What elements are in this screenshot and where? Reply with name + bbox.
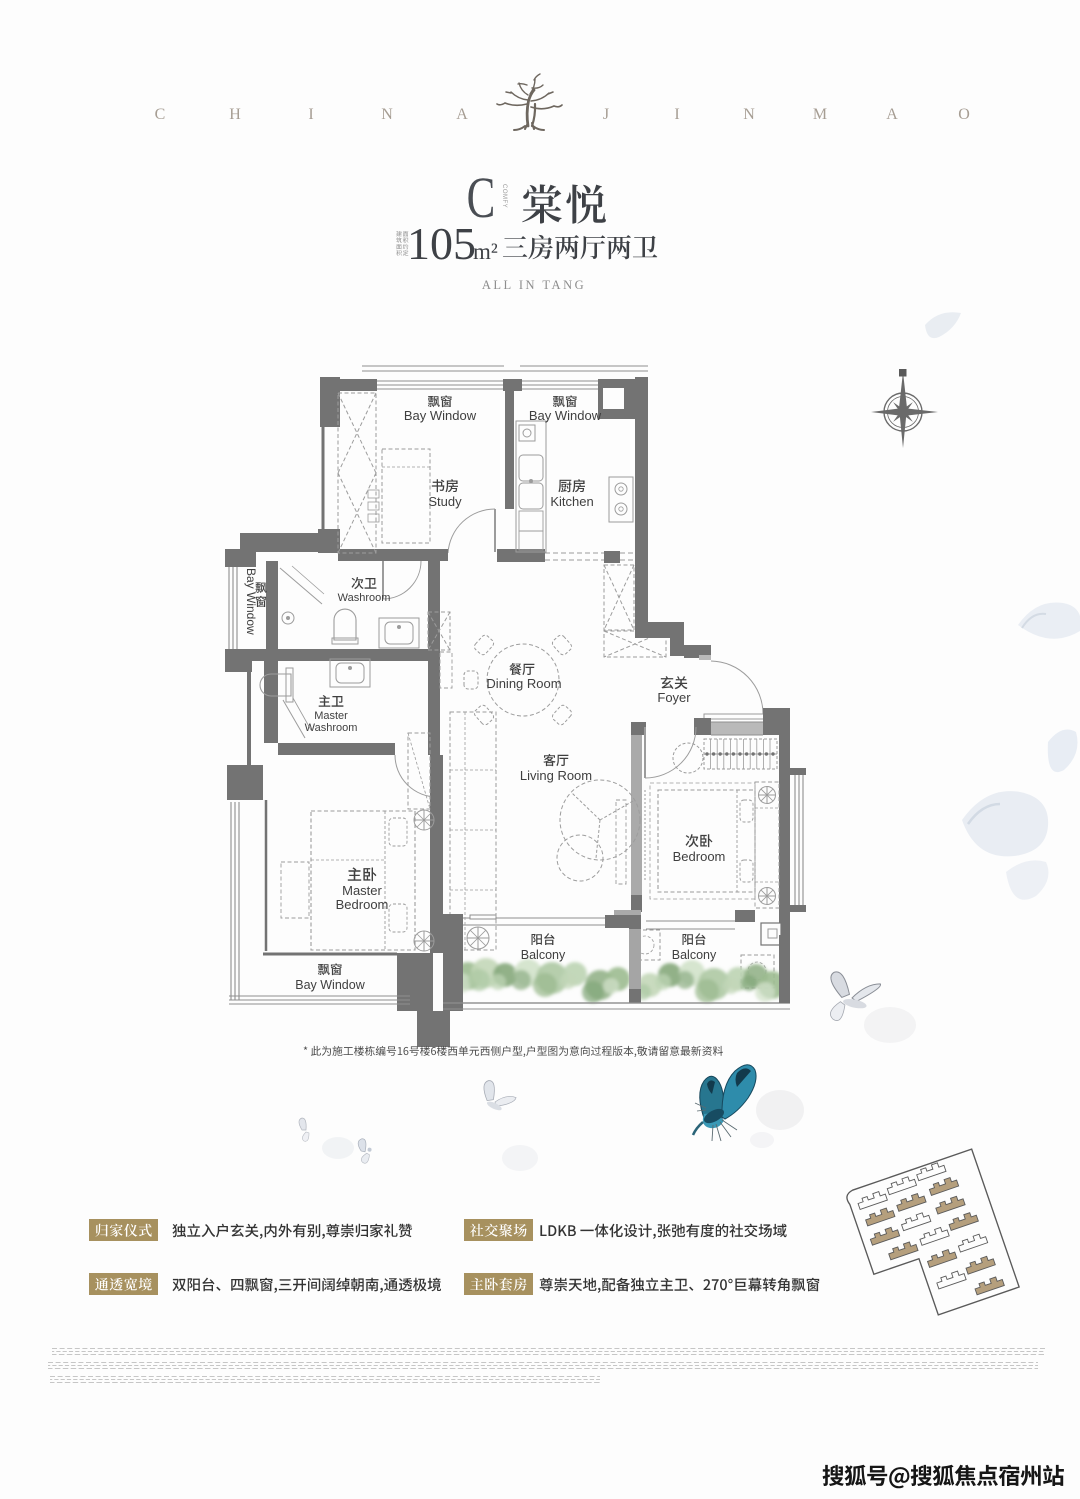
svg-text:J: J — [603, 106, 609, 123]
svg-text:C: C — [155, 106, 166, 123]
svg-text:Balcony: Balcony — [521, 948, 566, 962]
svg-text:Bedroom: Bedroom — [336, 897, 389, 912]
svg-text:m²: m² — [473, 239, 498, 264]
svg-text:I: I — [308, 106, 313, 123]
svg-text:Balcony: Balcony — [672, 948, 717, 962]
svg-text:M: M — [813, 106, 827, 123]
svg-text:Master: Master — [342, 883, 382, 898]
svg-text:Bay Window: Bay Window — [529, 408, 602, 423]
svg-text:H: H — [229, 106, 241, 123]
svg-text:Dining Room: Dining Room — [486, 676, 561, 691]
svg-text:N: N — [381, 106, 393, 123]
svg-text:Living Room: Living Room — [520, 768, 592, 783]
svg-text:A: A — [886, 106, 898, 123]
svg-text:Bay Window: Bay Window — [295, 978, 365, 992]
svg-text:Washroom: Washroom — [338, 592, 391, 604]
svg-text:Bedroom: Bedroom — [673, 849, 726, 864]
svg-text:Bay Window: Bay Window — [404, 408, 477, 423]
svg-text:Foyer: Foyer — [657, 690, 691, 705]
svg-text:105: 105 — [407, 218, 476, 269]
svg-text:Study: Study — [428, 494, 462, 509]
svg-text:ALL IN TANG: ALL IN TANG — [482, 278, 586, 292]
svg-text:Washroom: Washroom — [305, 722, 358, 734]
svg-text:Master: Master — [314, 710, 348, 722]
svg-text:I: I — [674, 106, 679, 123]
svg-text:Bay Window: Bay Window — [244, 568, 258, 635]
svg-text:A: A — [456, 106, 468, 123]
svg-text:Kitchen: Kitchen — [550, 494, 593, 509]
svg-text:N: N — [743, 106, 755, 123]
svg-text:COMFY: COMFY — [501, 184, 507, 208]
svg-text:O: O — [958, 106, 970, 123]
